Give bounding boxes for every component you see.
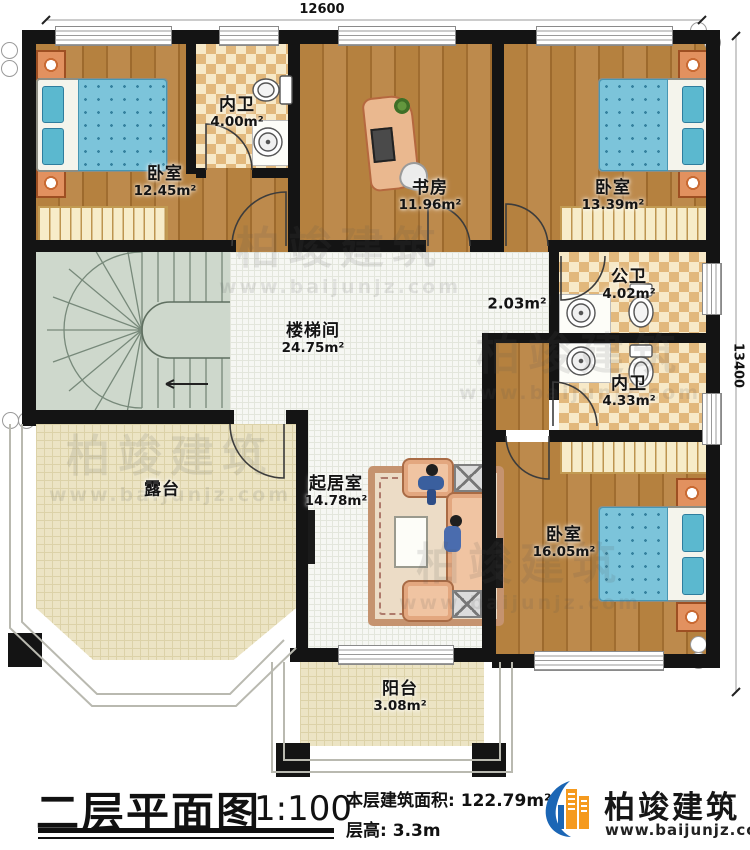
wall-segment	[706, 30, 720, 666]
company-logo-icon	[540, 777, 600, 841]
pillar	[472, 743, 506, 777]
wall-segment	[496, 430, 506, 442]
bed	[598, 78, 710, 172]
pillar	[8, 633, 42, 667]
floor-area-line: 本层建筑面积: 122.79m²	[346, 786, 552, 811]
pillow	[682, 128, 704, 165]
sofa-chair	[402, 458, 454, 498]
computer-monitor	[370, 127, 395, 163]
wall-segment	[22, 410, 234, 424]
room-label-balcony: 阳台 3.08m²	[373, 680, 426, 714]
wall-segment	[296, 424, 308, 660]
wall-segment	[196, 168, 206, 178]
room-name: 卧室	[582, 179, 645, 198]
company-logo-website: www.baijunjz.com	[605, 821, 750, 839]
wall-segment	[549, 430, 706, 442]
floor-wood-corridor	[496, 343, 549, 430]
pillow	[42, 128, 64, 165]
room-name: 卧室	[533, 526, 596, 545]
room-area: 4.00m²	[210, 115, 263, 130]
quilt	[599, 507, 668, 601]
drawing-scale: 1:100	[254, 789, 352, 829]
wardrobe	[38, 206, 168, 242]
wall-segment	[288, 44, 300, 252]
wall-segment	[286, 410, 308, 424]
wall-segment	[492, 654, 534, 668]
room-name: 卧室	[134, 165, 197, 184]
floor-height-value: 3.3m	[393, 821, 441, 841]
room-label-bedroom-tr: 卧室 13.39m²	[582, 179, 645, 213]
room-area: 2.03m²	[487, 296, 546, 313]
quilt	[78, 79, 167, 171]
wall-segment	[300, 240, 426, 252]
floor-height-label: 层高:	[346, 821, 387, 841]
wall-segment	[548, 240, 706, 252]
corner-ornament	[1, 42, 18, 59]
corner-ornament	[2, 412, 19, 429]
tv	[308, 510, 315, 564]
pillow	[42, 86, 64, 123]
room-name: 楼梯间	[282, 322, 345, 341]
room-name: 露台	[144, 480, 180, 499]
wall-segment	[549, 252, 559, 333]
floor-hall	[230, 252, 482, 424]
room-area: 12.45m²	[134, 184, 197, 199]
pillow	[682, 514, 704, 552]
coffee-table	[394, 516, 428, 568]
pillow	[682, 86, 704, 123]
dimension-top: 12600	[282, 2, 362, 17]
pillar	[276, 743, 310, 777]
room-area: 11.96m²	[399, 198, 462, 213]
room-area: 4.02m²	[602, 287, 655, 302]
wardrobe	[560, 440, 710, 474]
nightstand	[678, 168, 708, 198]
floor-height-line: 层高: 3.3m	[346, 816, 441, 841]
end-table	[452, 590, 482, 618]
nightstand	[36, 50, 66, 80]
nightstand	[678, 50, 708, 80]
quilt	[599, 79, 668, 171]
window	[338, 26, 456, 46]
room-name: 内卫	[210, 96, 263, 115]
window	[702, 393, 722, 445]
room-name: 起居室	[305, 475, 368, 494]
window	[219, 26, 279, 46]
floor-area-value: 122.79m²	[461, 791, 552, 811]
room-area: 14.78m²	[305, 494, 368, 509]
room-name: 公卫	[602, 268, 655, 287]
pillow	[682, 557, 704, 595]
wall-segment	[482, 343, 496, 654]
room-area: 24.75m²	[282, 341, 345, 356]
room-label-bedroom-tl: 卧室 12.45m²	[134, 165, 197, 199]
room-name: 书房	[399, 179, 462, 198]
floor-stair	[36, 252, 230, 410]
wall-segment	[559, 333, 706, 343]
room-label-bedroom-br: 卧室 16.05m²	[533, 526, 596, 560]
corner-ornament	[1, 60, 18, 77]
wall-segment	[482, 333, 559, 343]
room-label-study: 书房 11.96m²	[399, 179, 462, 213]
room-label-bath-public: 公卫 4.02m²	[602, 268, 655, 302]
room-label-corridor: 2.03m²	[487, 296, 546, 313]
room-label-living: 起居室 14.78m²	[305, 475, 368, 509]
nightstand	[676, 478, 708, 508]
window	[536, 26, 673, 46]
corner-ornament	[690, 636, 707, 653]
floor-plan-page: 12600 13400 卧室 12.45m² 内卫 4.00m² 书房 11.9…	[0, 0, 750, 850]
floor-terrace	[36, 424, 296, 660]
wall-segment	[186, 44, 196, 174]
wall-segment	[290, 648, 338, 662]
floor-corridor	[482, 252, 549, 333]
end-table	[454, 464, 484, 492]
room-area: 3.08m²	[373, 699, 426, 714]
room-area: 16.05m²	[533, 545, 596, 560]
room-label-terrace: 露台	[144, 480, 180, 499]
room-area: 13.39m²	[582, 198, 645, 213]
title-underline	[38, 837, 334, 839]
wall-segment	[22, 240, 236, 252]
bed	[598, 506, 710, 602]
plant	[394, 98, 410, 114]
wall-segment	[662, 654, 720, 668]
window	[702, 263, 722, 315]
room-label-stairwell: 楼梯间 24.75m²	[282, 322, 345, 356]
window	[534, 651, 664, 671]
tv	[496, 538, 503, 588]
wall-segment	[22, 30, 36, 426]
room-area: 4.33m²	[602, 394, 655, 409]
floor-area-label: 本层建筑面积:	[346, 791, 455, 811]
room-label-bath-top: 内卫 4.00m²	[210, 96, 263, 130]
nightstand	[36, 168, 66, 198]
bed	[36, 78, 168, 172]
window	[55, 26, 172, 46]
wall-segment	[549, 343, 559, 400]
room-name: 阳台	[373, 680, 426, 699]
wall-segment	[452, 648, 496, 662]
room-label-bath-inner: 内卫 4.33m²	[602, 375, 655, 409]
wall-segment	[492, 44, 504, 252]
window	[338, 645, 454, 665]
dimension-right: 13400	[731, 334, 746, 398]
nightstand	[676, 602, 708, 632]
room-name: 内卫	[602, 375, 655, 394]
sofa-chair	[402, 580, 454, 622]
